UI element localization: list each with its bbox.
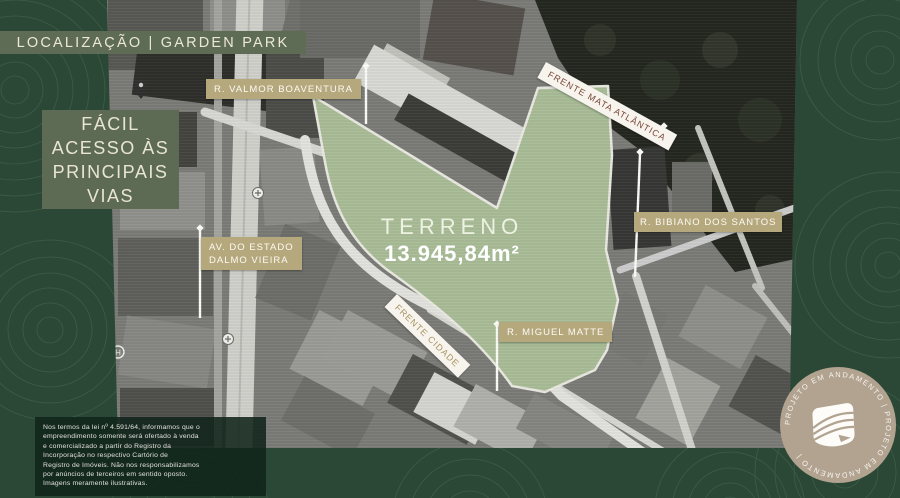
- location-slide: H LOCALIZAÇÃO | GARDEN PARK FÁCIL ACESSO…: [0, 0, 900, 498]
- svg-text:H: H: [115, 349, 121, 358]
- project-status-badge: PROJETO EM ANDAMENTO | PROJETO EM ANDAME…: [778, 365, 898, 485]
- street-label-av-do-estado: AV. DO ESTADO DALMO VIEIRA: [201, 237, 302, 270]
- legal-disclaimer: Nos termos da lei nº 4.591/64, informamo…: [35, 417, 266, 496]
- easy-access-callout: FÁCIL ACESSO ÀS PRINCIPAIS VIAS: [42, 110, 179, 209]
- title-banner: LOCALIZAÇÃO | GARDEN PARK: [0, 31, 306, 54]
- title-banner-text: LOCALIZAÇÃO | GARDEN PARK: [17, 35, 290, 51]
- street-label-bibiano-dos-santos: R. BIBIANO DOS SANTOS: [634, 212, 782, 232]
- garden-park-logo-icon: [812, 403, 855, 447]
- easy-access-text: FÁCIL ACESSO ÀS PRINCIPAIS VIAS: [52, 112, 170, 208]
- terrain-area-value: 13.945,84m²: [352, 241, 552, 267]
- poi-plus-icon: [223, 334, 234, 345]
- terrain-title: TERRENO: [352, 214, 552, 240]
- street-label-valmor-boaventura: R. VALMOR BOAVENTURA: [206, 79, 361, 99]
- poi-plus-icon: [253, 188, 264, 199]
- street-label-miguel-matte: R. MIGUEL MATTE: [499, 322, 612, 342]
